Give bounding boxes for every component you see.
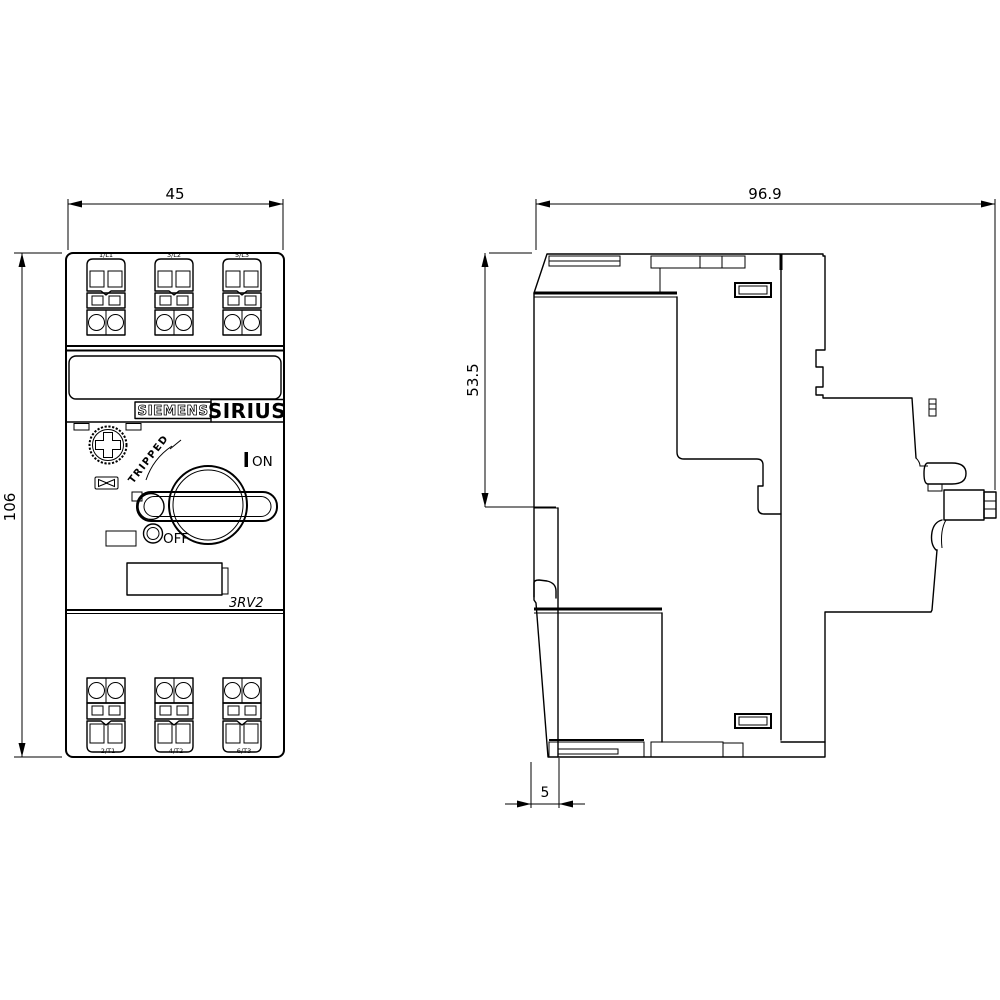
- front-view: 1/L1 3/L2 5/L3 SIEMENS SIRIUS: [1, 185, 286, 757]
- din-rail-clip: [534, 580, 556, 598]
- current-setting-dial[interactable]: [90, 427, 127, 464]
- dimension-rail-offset-5: 5: [505, 758, 585, 808]
- dimension-width-45: 45: [68, 185, 283, 250]
- side-knob-cap: [984, 492, 996, 518]
- on-label: ON: [252, 454, 273, 470]
- dimension-depth-96-9: 96.9: [536, 185, 995, 490]
- side-top-terminal-covers: [549, 256, 745, 292]
- label-field: [127, 563, 228, 595]
- cross-slot-icon: [96, 433, 121, 458]
- dim-rail-offset-value: 5: [541, 785, 550, 801]
- terminal-label-bottom-3: 6/T3: [237, 747, 251, 755]
- dim-height-value: 106: [1, 493, 19, 522]
- reset-window: [106, 531, 136, 546]
- off-marking: OFF: [144, 524, 190, 547]
- terminal-label-top-2: 3/L2: [167, 251, 181, 259]
- brand-logo-text: SIEMENS: [137, 403, 208, 419]
- dim-upper-height-value: 53.5: [464, 363, 482, 396]
- terminal-label-top-1: 1/L1: [99, 251, 113, 259]
- dim-width-value: 45: [165, 185, 184, 203]
- test-button-icon[interactable]: [95, 477, 118, 489]
- technical-drawing: 1/L1 3/L2 5/L3 SIEMENS SIRIUS: [0, 0, 1000, 1000]
- front-bottom-terminals: 2/T1 4/T2 6/T3: [87, 678, 261, 755]
- side-outline-lower: [534, 293, 937, 757]
- terminal-label-bottom-1: 2/T1: [101, 747, 115, 755]
- side-knob-body: [944, 490, 984, 520]
- tripped-indicator: TRIPPED: [127, 433, 181, 486]
- front-operating-panel: TRIPPED ON: [74, 424, 277, 612]
- side-lower-slot: [735, 714, 771, 728]
- brand-plate: SIEMENS SIRIUS: [66, 399, 286, 423]
- side-handle-lever: [924, 463, 966, 484]
- side-upper-slot: [735, 283, 771, 297]
- model-label: 3RV2: [229, 596, 263, 611]
- front-lower-separator: [66, 610, 284, 614]
- series-text: SIRIUS: [208, 399, 286, 423]
- dim-depth-value: 96.9: [748, 185, 781, 203]
- side-outline-upper: [534, 254, 916, 458]
- on-marking: ON: [245, 452, 273, 470]
- tripped-label: TRIPPED: [127, 433, 172, 486]
- dimension-upper-height-53-5: 53.5: [464, 253, 556, 507]
- side-bottom-terminal-covers: [549, 740, 743, 757]
- dimension-height-106: 106: [1, 253, 62, 757]
- front-body-outline: [66, 253, 284, 757]
- front-top-terminals: 1/L1 3/L2 5/L3: [87, 251, 261, 335]
- front-upper-band: [69, 356, 281, 399]
- front-upper-separator: [66, 346, 284, 351]
- drawing-page: 1/L1 3/L2 5/L3 SIEMENS SIRIUS: [0, 0, 1000, 1000]
- side-knob-assembly: [916, 399, 996, 550]
- side-view: 96.9 53.5 5: [464, 185, 996, 808]
- terminal-label-bottom-2: 4/T2: [169, 747, 183, 755]
- side-mid-recess: [677, 297, 781, 514]
- terminal-label-top-3: 5/L3: [235, 251, 249, 259]
- rotary-switch-knob[interactable]: [132, 466, 277, 544]
- off-label: OFF: [163, 531, 189, 547]
